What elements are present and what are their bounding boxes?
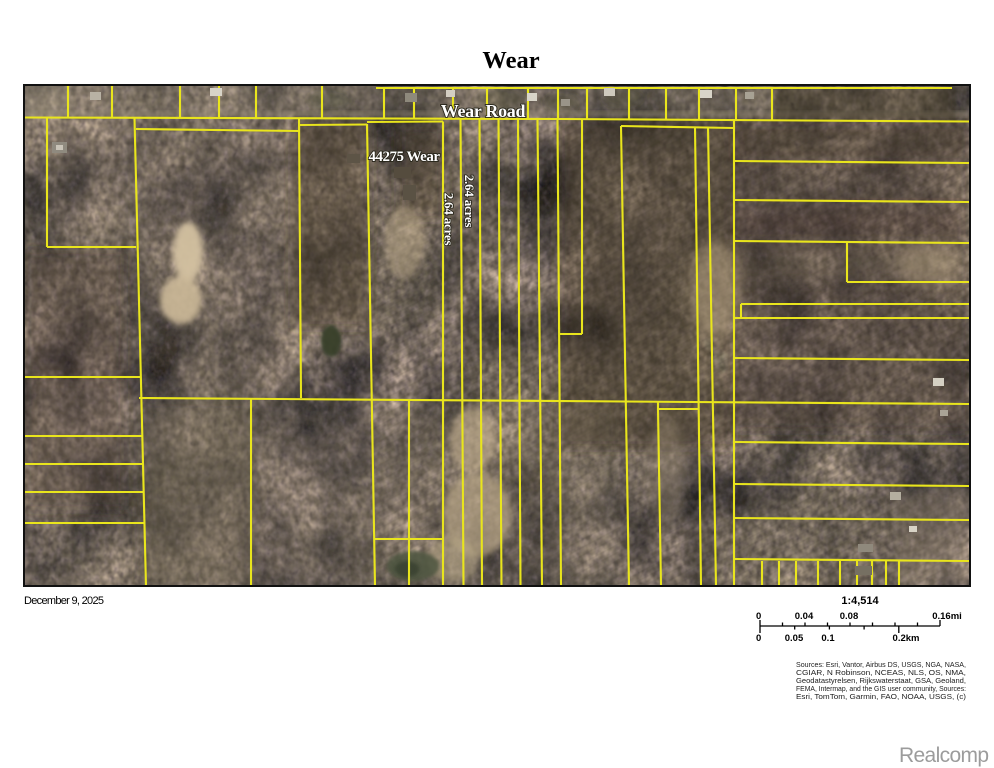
svg-text:Esri, TomTom, Garmin, FAO, NOA: Esri, TomTom, Garmin, FAO, NOAA, USGS, (… <box>796 692 966 701</box>
svg-text:Realcomp: Realcomp <box>899 744 989 767</box>
svg-text:0.2km: 0.2km <box>893 633 920 644</box>
svg-text:0.04: 0.04 <box>795 611 814 622</box>
svg-text:1:4,514: 1:4,514 <box>841 595 879 607</box>
svg-text:0: 0 <box>756 633 761 644</box>
svg-text:0.05: 0.05 <box>785 633 804 644</box>
svg-text:Wear: Wear <box>482 47 539 74</box>
svg-text:44275 Wear: 44275 Wear <box>369 149 441 165</box>
svg-text:Wear Road: Wear Road <box>441 101 526 121</box>
svg-text:0.1: 0.1 <box>821 633 835 644</box>
svg-text:0.16mi: 0.16mi <box>932 611 962 622</box>
svg-text:December 9, 2025: December 9, 2025 <box>24 595 104 607</box>
svg-text:2.64 acres: 2.64 acres <box>462 175 477 228</box>
svg-text:0.08: 0.08 <box>840 611 859 622</box>
svg-text:2.64 acres: 2.64 acres <box>442 193 457 246</box>
